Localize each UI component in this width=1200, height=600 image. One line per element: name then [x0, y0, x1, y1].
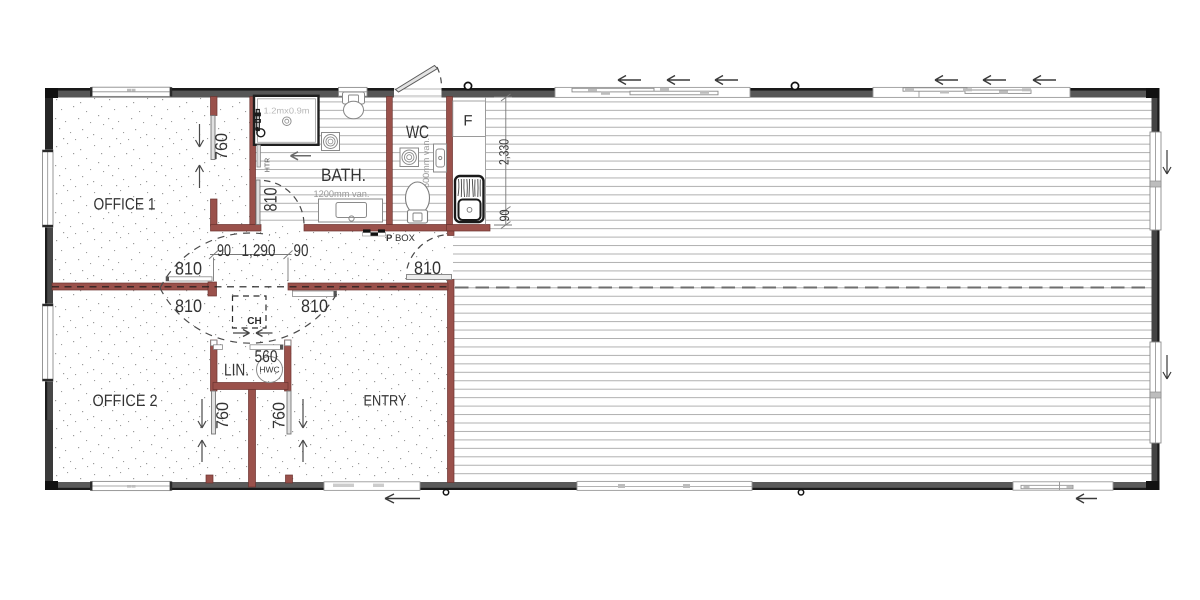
- svg-text:F: F: [463, 113, 472, 130]
- svg-text:OFFICE 2: OFFICE 2: [93, 392, 158, 410]
- svg-text:810: 810: [261, 188, 281, 212]
- svg-text:BATH.: BATH.: [321, 165, 366, 185]
- svg-text:HTR: HTR: [265, 158, 272, 172]
- svg-text:810: 810: [175, 259, 202, 279]
- svg-text:560: 560: [255, 347, 278, 366]
- svg-text:1.2mx0.9m: 1.2mx0.9m: [264, 106, 310, 116]
- svg-text:1200mm van.: 1200mm van.: [314, 189, 370, 200]
- svg-text:90: 90: [217, 241, 231, 260]
- svg-text:810: 810: [301, 296, 328, 316]
- svg-text:ENTRY: ENTRY: [364, 393, 407, 410]
- svg-text:760: 760: [212, 133, 231, 160]
- svg-text:LIN.: LIN.: [224, 361, 249, 380]
- svg-text:1,290: 1,290: [242, 241, 276, 260]
- svg-text:OFFICE 1: OFFICE 1: [94, 196, 156, 214]
- svg-text:P BOX: P BOX: [386, 233, 416, 244]
- svg-text:HWC: HWC: [259, 365, 279, 375]
- svg-text:760: 760: [213, 402, 232, 429]
- svg-text:CH: CH: [247, 316, 261, 327]
- svg-text:810: 810: [414, 258, 441, 278]
- svg-text:90: 90: [497, 210, 512, 222]
- svg-text:760: 760: [270, 402, 289, 429]
- svg-text:810: 810: [175, 296, 202, 316]
- svg-text:2,330: 2,330: [497, 139, 512, 165]
- svg-text:500mm van.: 500mm van.: [421, 138, 431, 188]
- svg-text:90: 90: [294, 241, 309, 260]
